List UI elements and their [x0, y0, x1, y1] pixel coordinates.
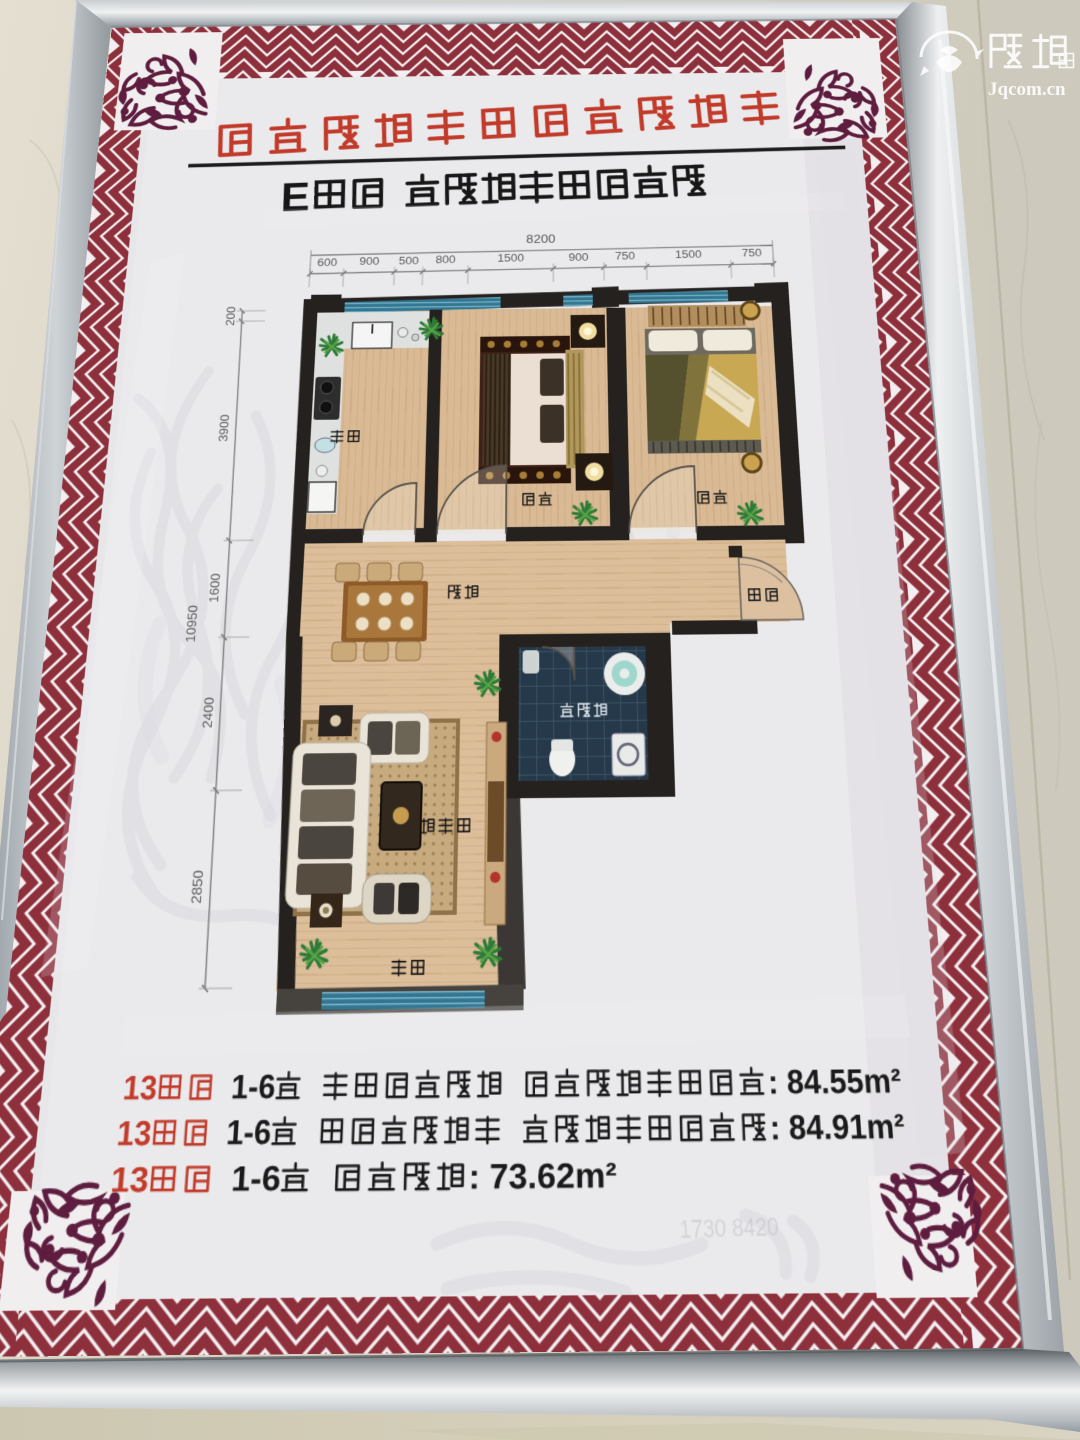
svg-text:Jqcom.cn: Jqcom.cn [988, 79, 1066, 100]
